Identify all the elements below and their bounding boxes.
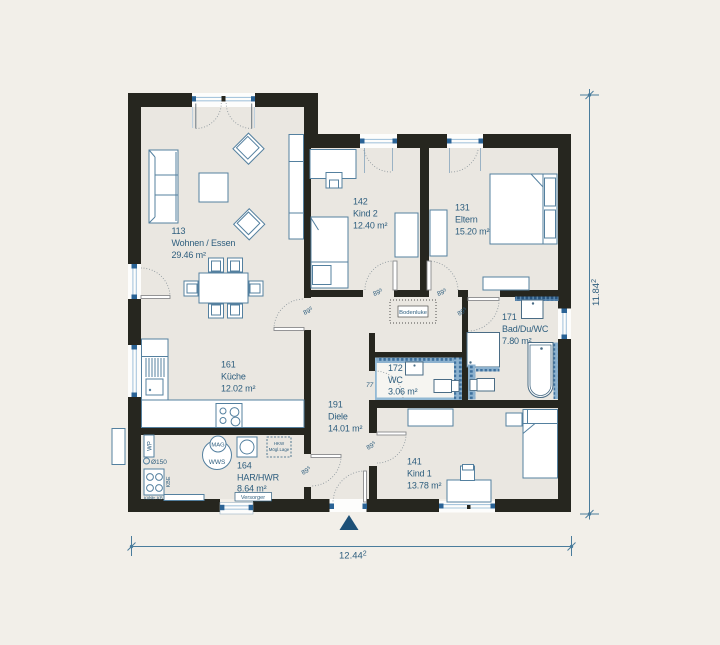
svg-text:11.842: 11.842 bbox=[591, 279, 602, 306]
svg-text:Eltern: Eltern bbox=[455, 215, 478, 225]
svg-text:KBE: KBE bbox=[166, 476, 172, 487]
svg-text:142: 142 bbox=[353, 197, 368, 207]
svg-text:MAG: MAG bbox=[211, 443, 225, 449]
svg-text:77: 77 bbox=[366, 382, 374, 389]
svg-text:12.442: 12.442 bbox=[339, 551, 367, 562]
svg-text:164: 164 bbox=[237, 461, 252, 471]
svg-text:12.40 m²: 12.40 m² bbox=[353, 221, 387, 231]
svg-text:172: 172 bbox=[388, 363, 403, 373]
svg-text:Kind 2: Kind 2 bbox=[353, 209, 378, 219]
svg-text:191: 191 bbox=[328, 400, 343, 410]
svg-text:Ø150: Ø150 bbox=[151, 459, 167, 466]
svg-text:Kind 1: Kind 1 bbox=[407, 469, 432, 479]
svg-text:Küche: Küche bbox=[221, 372, 246, 382]
svg-text:15.20 m²: 15.20 m² bbox=[455, 227, 489, 237]
svg-text:3.06 m²: 3.06 m² bbox=[388, 387, 418, 397]
svg-text:WP: WP bbox=[148, 441, 154, 451]
svg-text:13.78 m²: 13.78 m² bbox=[407, 481, 441, 491]
svg-text:12.02 m²: 12.02 m² bbox=[221, 384, 255, 394]
svg-text:Mögl.Lage: Mögl.Lage bbox=[269, 447, 290, 452]
svg-text:Diele: Diele bbox=[328, 412, 348, 422]
svg-text:7.80 m²: 7.80 m² bbox=[502, 336, 532, 346]
svg-text:141: 141 bbox=[407, 457, 422, 467]
svg-text:WWS: WWS bbox=[209, 459, 226, 466]
svg-text:171: 171 bbox=[502, 312, 517, 322]
svg-text:113: 113 bbox=[172, 226, 186, 236]
svg-text:Kühltr. KB: Kühltr. KB bbox=[144, 496, 163, 501]
svg-text:8.64 m²: 8.64 m² bbox=[237, 484, 267, 494]
svg-text:Bad/Du/WC: Bad/Du/WC bbox=[502, 324, 549, 334]
svg-text:14.01 m²: 14.01 m² bbox=[328, 424, 362, 434]
svg-text:Wohnen / Essen: Wohnen / Essen bbox=[172, 238, 236, 248]
svg-text:Versorger: Versorger bbox=[241, 495, 265, 501]
svg-text:Bodenluke: Bodenluke bbox=[399, 310, 428, 316]
svg-text:161: 161 bbox=[221, 360, 236, 370]
svg-text:131: 131 bbox=[455, 203, 470, 213]
svg-text:WC: WC bbox=[388, 375, 403, 385]
svg-text:HKW: HKW bbox=[274, 441, 285, 446]
svg-text:29.46 m²: 29.46 m² bbox=[172, 250, 206, 260]
svg-text:HAR/HWR: HAR/HWR bbox=[237, 473, 280, 483]
